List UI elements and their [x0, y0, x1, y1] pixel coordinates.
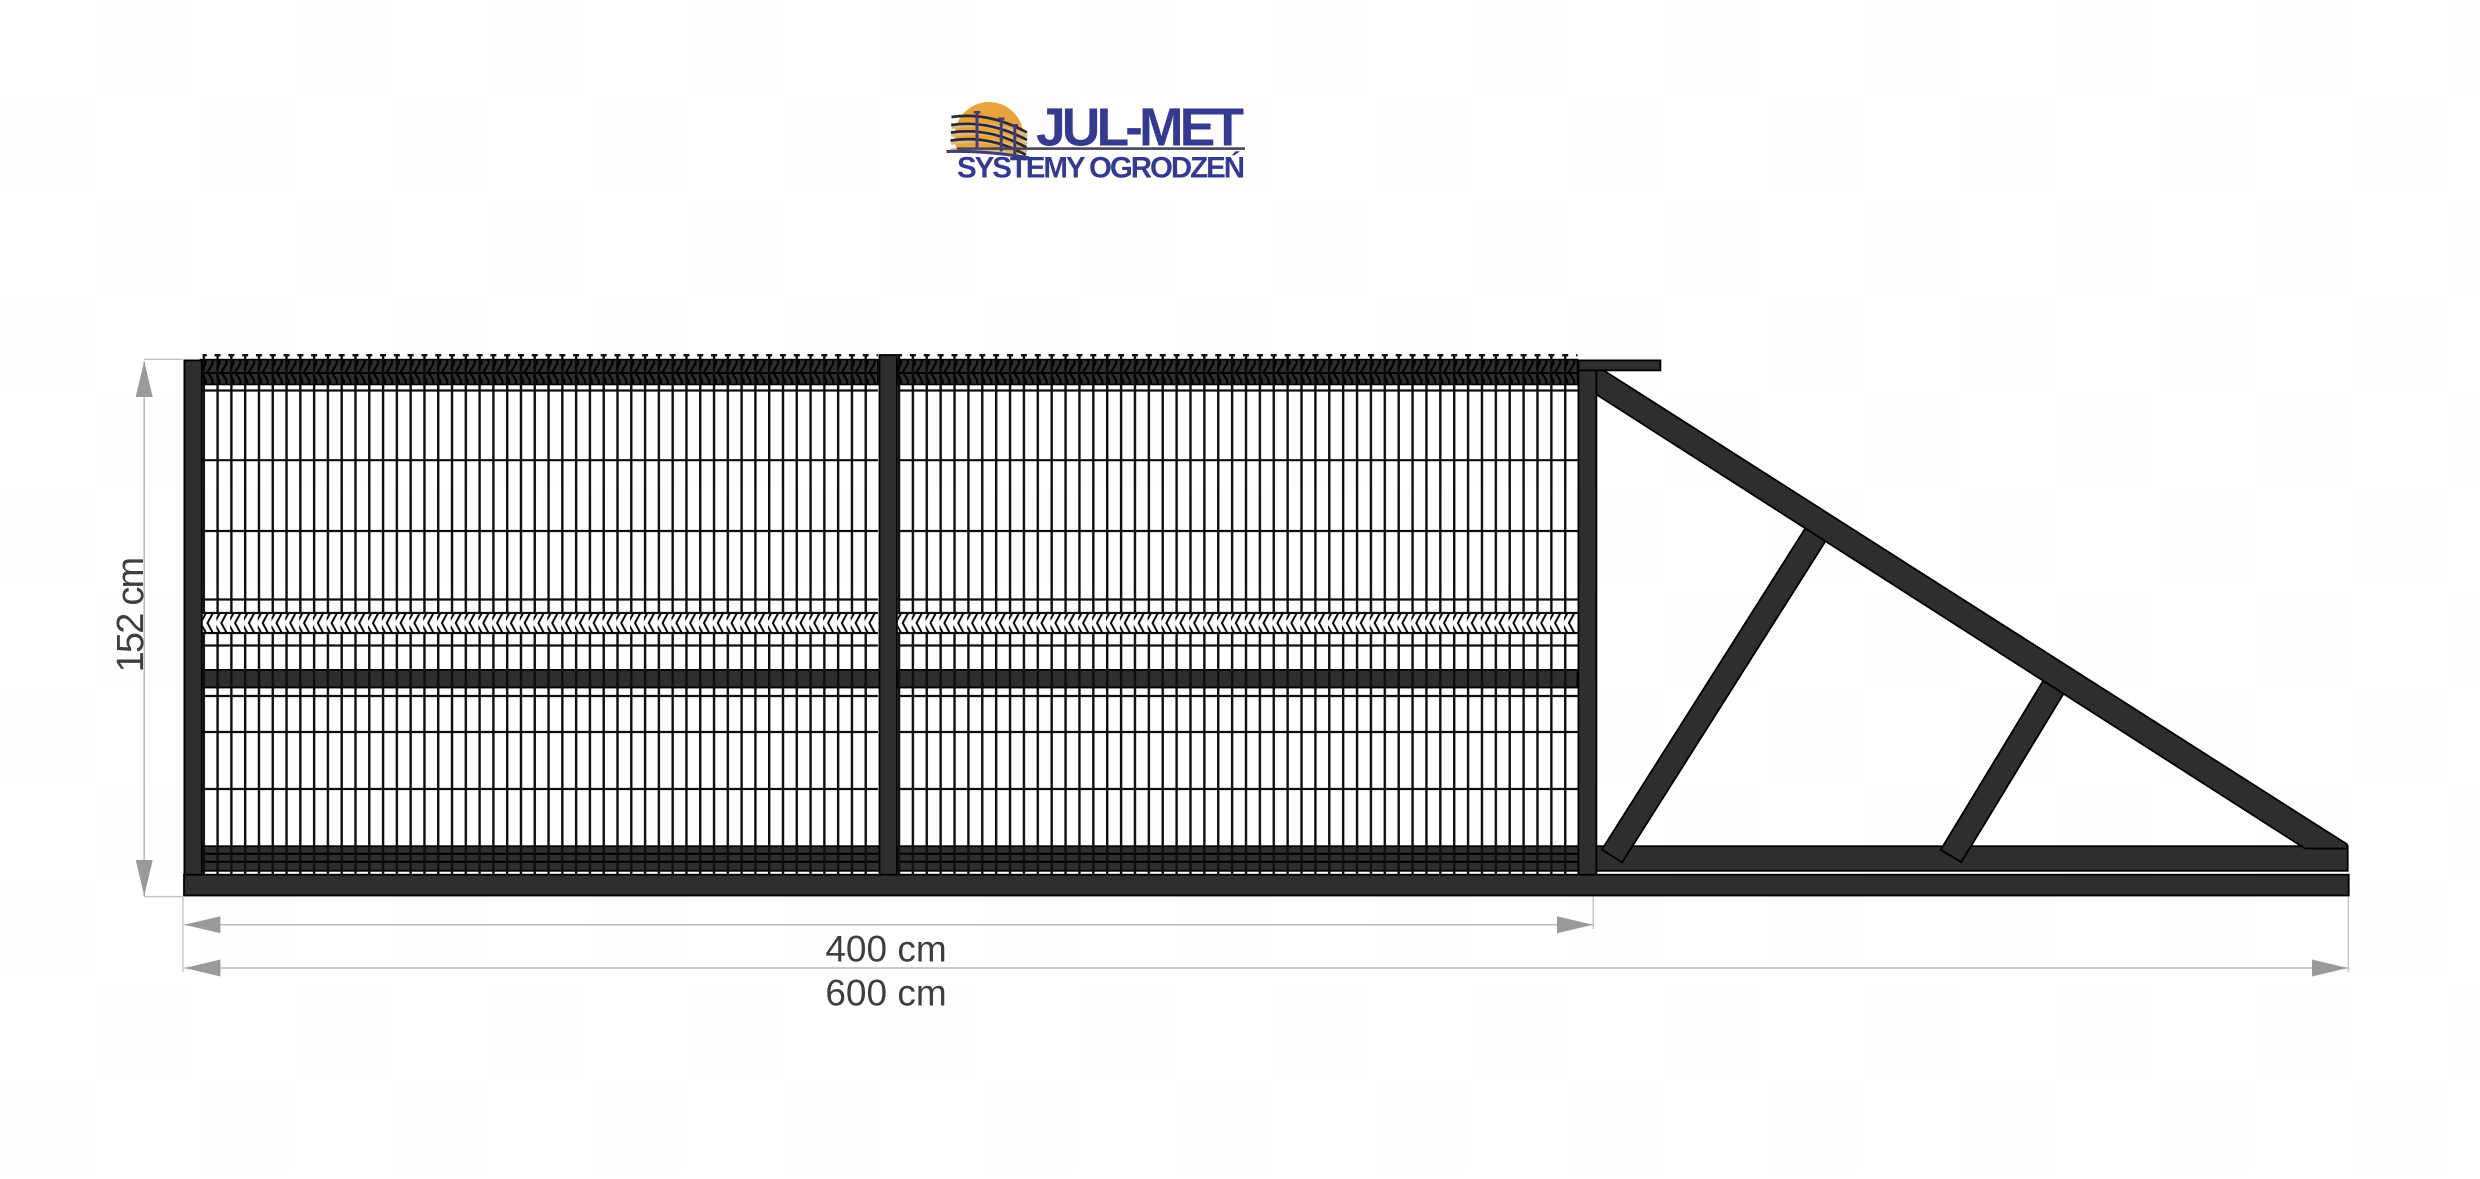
- svg-text:600 cm: 600 cm: [825, 973, 946, 1014]
- svg-text:SYSTEMY OGRODZEŃ: SYSTEMY OGRODZEŃ: [957, 151, 1245, 185]
- svg-text:152 cm: 152 cm: [110, 558, 152, 672]
- svg-text:400 cm: 400 cm: [825, 929, 946, 970]
